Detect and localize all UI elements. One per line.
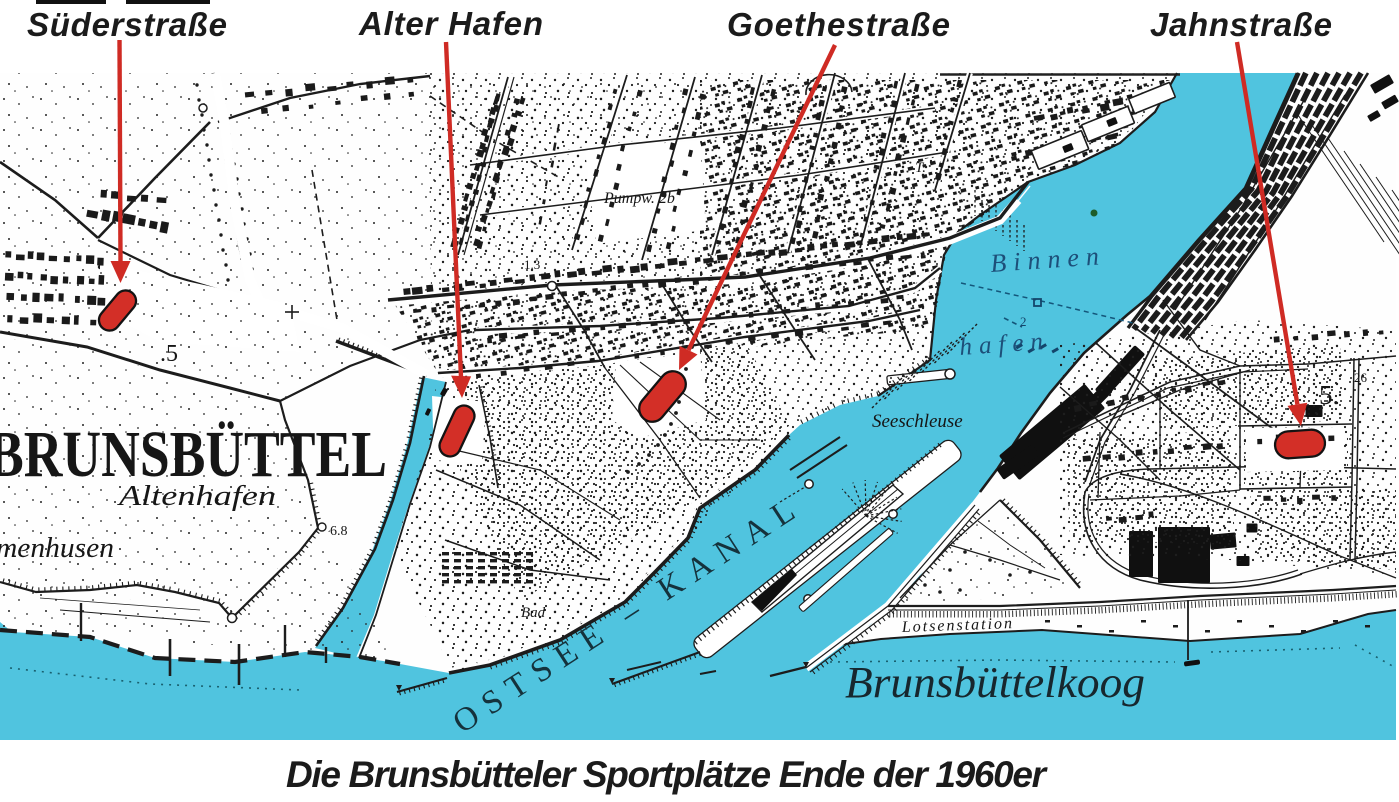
svg-text:Goethestraße: Goethestraße	[727, 6, 950, 43]
svg-text:T.: T.	[915, 160, 926, 176]
svg-text:.5: .5	[160, 341, 178, 367]
svg-text:Seeschleuse: Seeschleuse	[872, 411, 963, 432]
svg-text:Brunsbüttelkoog: Brunsbüttelkoog	[845, 658, 1145, 707]
svg-text:6.8: 6.8	[330, 524, 348, 539]
svg-text:Altenhafen: Altenhafen	[117, 480, 276, 512]
svg-text:Bad: Bad	[521, 605, 546, 621]
svg-text:26: 26	[1354, 370, 1368, 385]
svg-text:Alter Hafen: Alter Hafen	[358, 5, 543, 42]
svg-text:Jahnstraße: Jahnstraße	[1150, 6, 1332, 43]
svg-text:5.: 5.	[1319, 380, 1339, 410]
svg-text:Süderstraße: Süderstraße	[27, 6, 227, 43]
svg-text:menhusen: menhusen	[0, 533, 114, 564]
svg-text:Die Brunsbütteler Sportplätze: Die Brunsbütteler Sportplätze Ende der 1…	[286, 754, 1049, 795]
svg-text:1.3: 1.3	[524, 257, 540, 272]
svg-text:Pumpw. 2b: Pumpw. 2b	[603, 190, 675, 207]
